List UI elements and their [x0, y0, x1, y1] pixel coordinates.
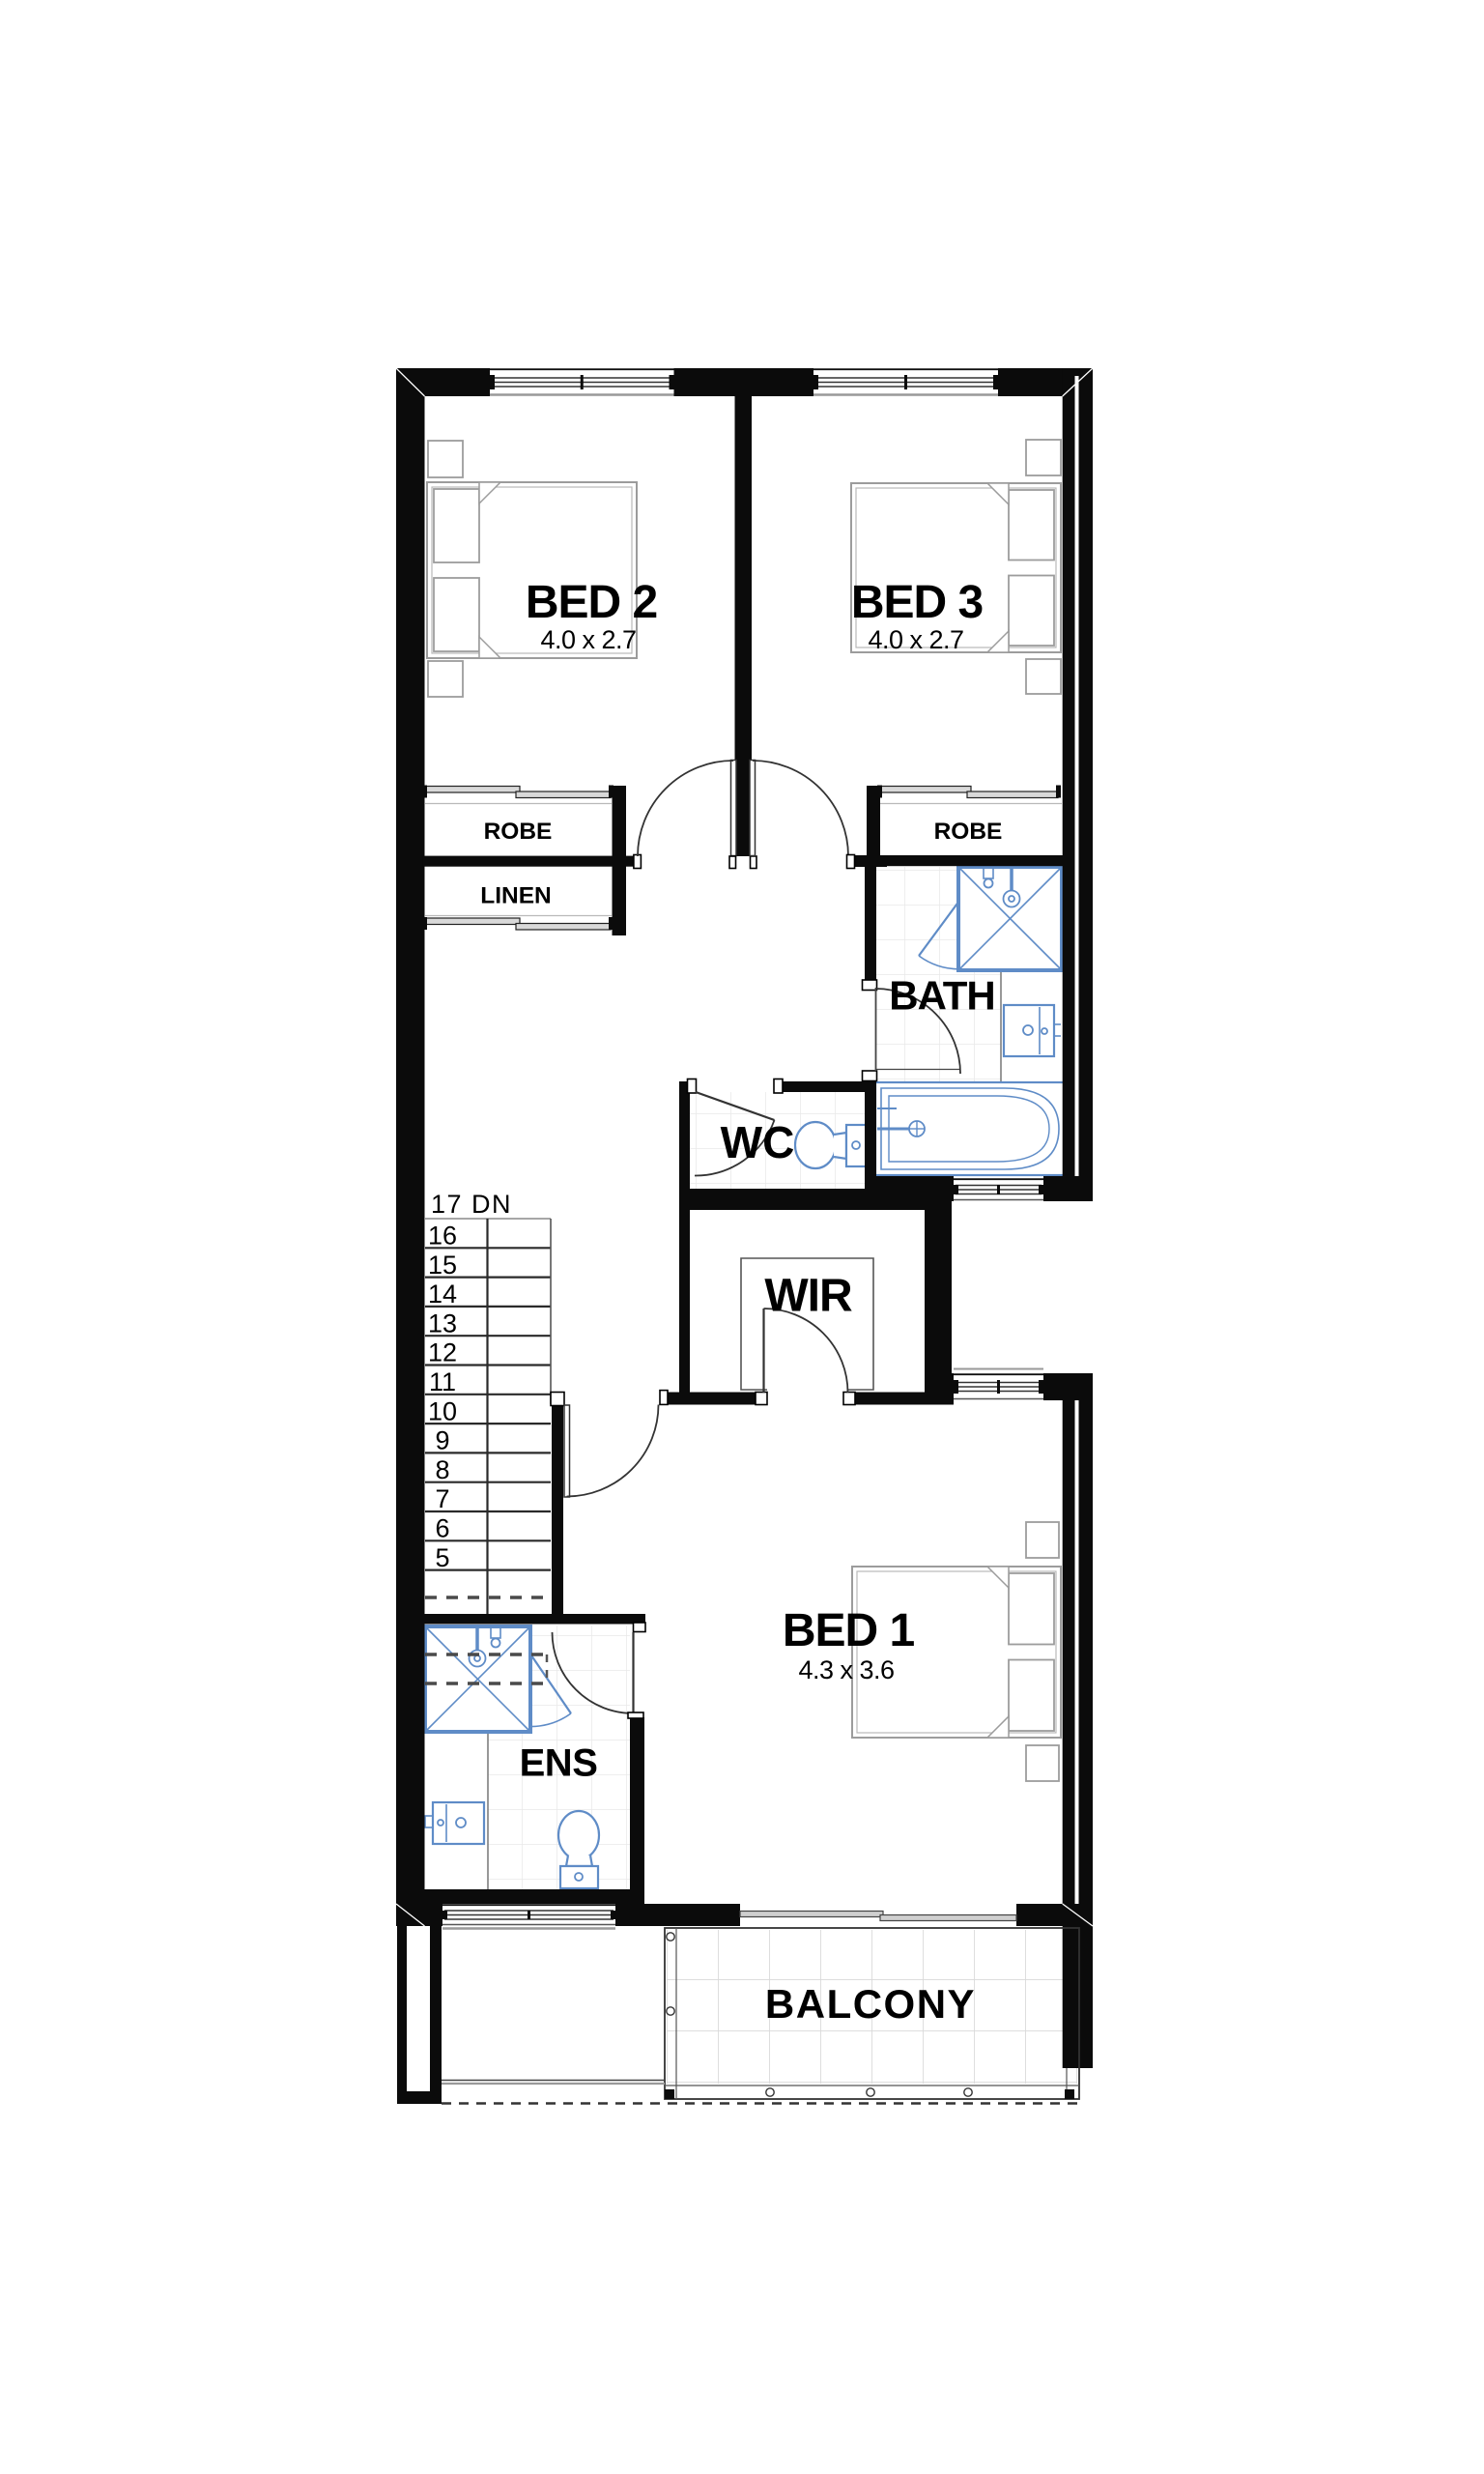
svg-text:17 DN: 17 DN [431, 1190, 512, 1219]
svg-text:12: 12 [428, 1338, 457, 1367]
svg-text:BED 1: BED 1 [783, 1605, 915, 1656]
svg-text:4.0 x 2.7: 4.0 x 2.7 [540, 625, 636, 654]
svg-text:7: 7 [435, 1484, 449, 1513]
svg-text:BED 3: BED 3 [851, 577, 983, 628]
svg-text:16: 16 [428, 1222, 457, 1251]
svg-text:BALCONY: BALCONY [765, 1981, 976, 2027]
svg-text:6: 6 [435, 1514, 449, 1543]
svg-text:13: 13 [428, 1309, 457, 1338]
svg-text:10: 10 [428, 1396, 457, 1425]
svg-text:LINEN: LINEN [480, 883, 552, 909]
svg-text:15: 15 [428, 1251, 457, 1280]
svg-text:14: 14 [428, 1280, 457, 1309]
svg-text:11: 11 [429, 1367, 456, 1396]
svg-text:BATH: BATH [889, 973, 995, 1019]
svg-text:ROBE: ROBE [934, 819, 1003, 845]
svg-text:9: 9 [435, 1426, 449, 1455]
svg-text:4.0 x 2.7: 4.0 x 2.7 [868, 625, 963, 654]
svg-text:8: 8 [435, 1455, 449, 1484]
svg-text:WIR: WIR [764, 1271, 852, 1322]
svg-text:ENS: ENS [520, 1742, 598, 1785]
svg-text:5: 5 [435, 1543, 449, 1572]
svg-text:ROBE: ROBE [484, 819, 553, 845]
svg-text:WC: WC [721, 1117, 795, 1167]
svg-text:4.3 x 3.6: 4.3 x 3.6 [798, 1655, 894, 1684]
svg-text:BED 2: BED 2 [526, 577, 657, 628]
